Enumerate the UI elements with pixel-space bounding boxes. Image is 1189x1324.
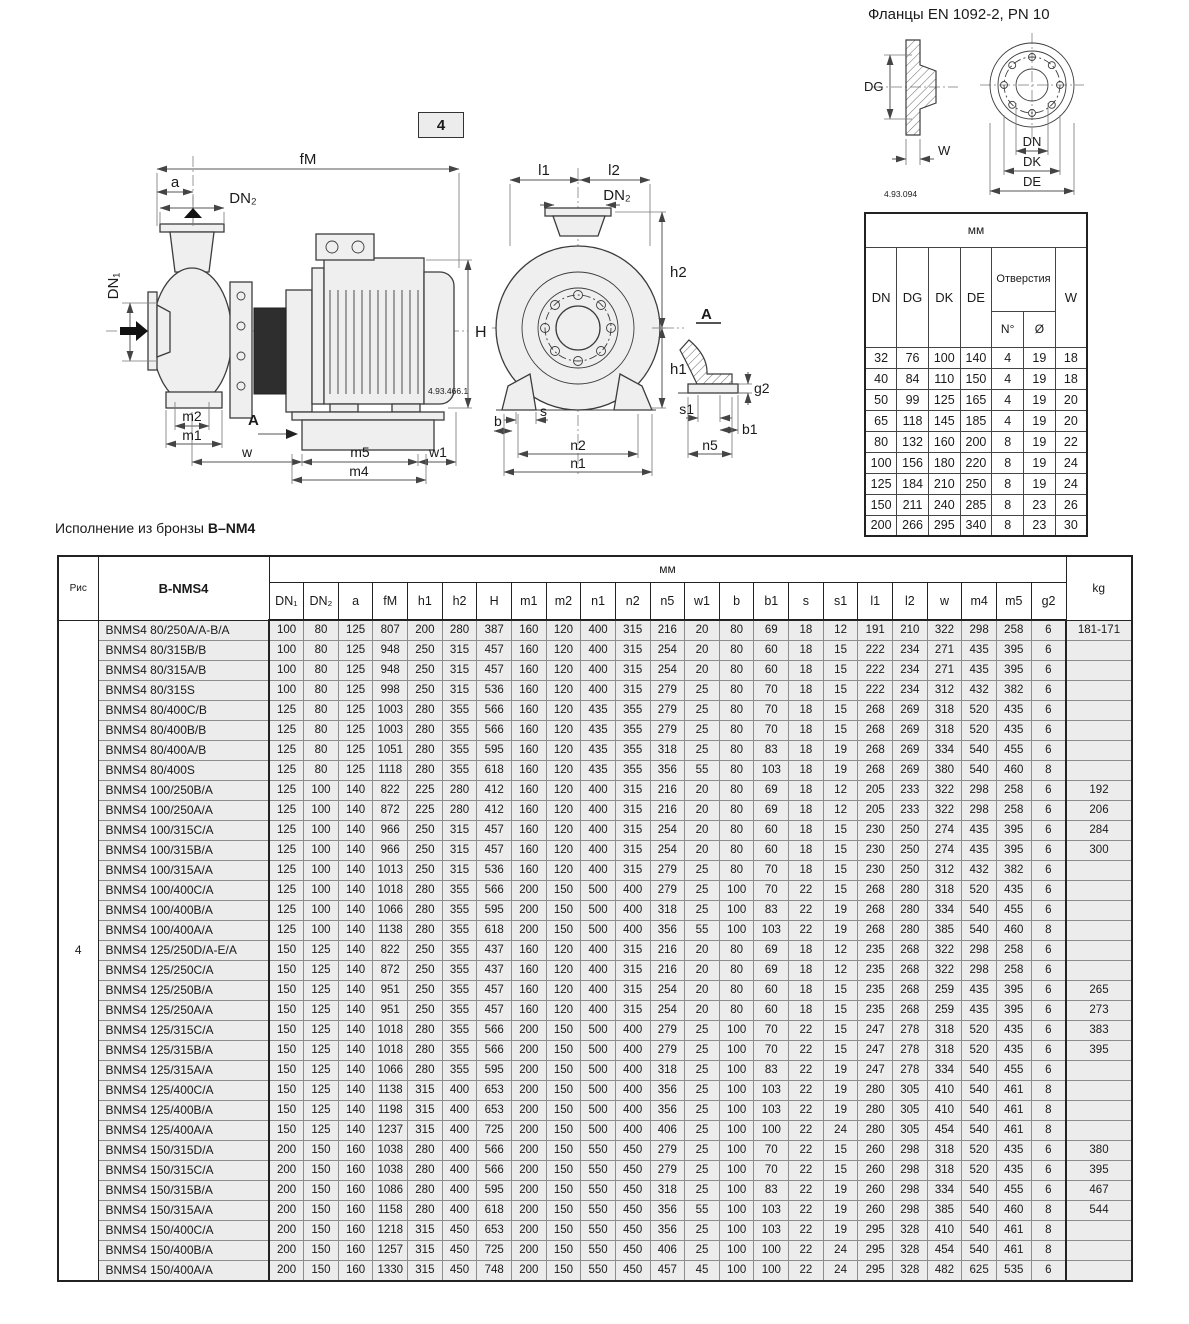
dim-cell: 250 bbox=[408, 661, 443, 681]
dim-cell: 395 bbox=[996, 821, 1031, 841]
dim-cell: 160 bbox=[511, 981, 546, 1001]
dim-cell: 18 bbox=[789, 701, 824, 721]
dim-cell: 406 bbox=[650, 1241, 685, 1261]
dim-cell: 140 bbox=[338, 1041, 373, 1061]
dim-cell: 295 bbox=[858, 1241, 893, 1261]
flange-dim-cell: 8 bbox=[992, 515, 1024, 536]
flange-dim-cell: 285 bbox=[960, 494, 992, 515]
suction-flow-arrow bbox=[120, 321, 148, 341]
dim-cell: 140 bbox=[338, 1061, 373, 1081]
flange-dim-cell: 30 bbox=[1055, 515, 1087, 536]
flange-dim-cell: 165 bbox=[960, 389, 992, 410]
dim-cell: 18 bbox=[789, 941, 824, 961]
dim-cell: 278 bbox=[893, 1041, 928, 1061]
dim-cell: 500 bbox=[581, 921, 616, 941]
flange-dim-cell: 50 bbox=[865, 389, 897, 410]
dim-cell: 120 bbox=[546, 961, 581, 981]
dim-cell: 22 bbox=[789, 1061, 824, 1081]
flange-col-holes-d: Ø bbox=[1024, 311, 1056, 347]
flange-dim-cell: 19 bbox=[1024, 389, 1056, 410]
dim-cell: 450 bbox=[615, 1181, 650, 1201]
dim-cell: 6 bbox=[1031, 661, 1066, 681]
dim-col-header: n1 bbox=[581, 582, 616, 620]
dim-cell: 318 bbox=[927, 1161, 962, 1181]
dim-cell: 22 bbox=[789, 901, 824, 921]
dim-cell: 279 bbox=[650, 1161, 685, 1181]
volute-casing bbox=[496, 208, 660, 410]
dim-cell: 83 bbox=[754, 1181, 789, 1201]
dim-cell: 216 bbox=[650, 941, 685, 961]
dim-cell: 318 bbox=[650, 1181, 685, 1201]
figure-number-box: 4 bbox=[418, 112, 464, 138]
dim-cell: 15 bbox=[823, 701, 858, 721]
model-name-cell: BNMS4 125/400B/A bbox=[98, 1101, 269, 1121]
dim-cell: 500 bbox=[581, 1081, 616, 1101]
dim-cell: 22 bbox=[789, 1261, 824, 1282]
dim-cell: 355 bbox=[442, 1041, 477, 1061]
flange-table-row: 408411015041918 bbox=[865, 368, 1087, 389]
dim-cell: 12 bbox=[823, 781, 858, 801]
dim-cell: 540 bbox=[962, 1241, 997, 1261]
dim-cell: 500 bbox=[581, 1061, 616, 1081]
dim-cell: 150 bbox=[269, 941, 304, 961]
dim-cell: 120 bbox=[546, 841, 581, 861]
dim-cell: 450 bbox=[615, 1161, 650, 1181]
dim-cell: 1330 bbox=[373, 1261, 408, 1282]
dim-cell: 457 bbox=[650, 1261, 685, 1282]
dim-cell: 520 bbox=[962, 1021, 997, 1041]
dim-cell: 315 bbox=[615, 681, 650, 701]
dim-cell: 822 bbox=[373, 941, 408, 961]
dim-cell: 1018 bbox=[373, 1041, 408, 1061]
bronze-version-note: Исполнение из бронзы B–NM4 bbox=[55, 520, 255, 536]
dim-cell: 1198 bbox=[373, 1101, 408, 1121]
dim-cell: 536 bbox=[477, 681, 512, 701]
dim-cell: 461 bbox=[996, 1101, 1031, 1121]
dim-cell: 70 bbox=[754, 1141, 789, 1161]
table-row: BNMS4 100/315A/A125100140101325031553616… bbox=[58, 861, 1132, 881]
model-name-cell: BNMS4 125/400C/A bbox=[98, 1081, 269, 1101]
dim-cell: 80 bbox=[719, 741, 754, 761]
dim-cell: 140 bbox=[338, 801, 373, 821]
dim-cell: 100 bbox=[719, 881, 754, 901]
dim-cell: 60 bbox=[754, 661, 789, 681]
dim-cell: 356 bbox=[650, 1221, 685, 1241]
section-a-label: A bbox=[248, 412, 259, 429]
dim-cell: 280 bbox=[442, 781, 477, 801]
dim-cell: 822 bbox=[373, 781, 408, 801]
dim-cell: 234 bbox=[893, 681, 928, 701]
dim-label-s1: s1 bbox=[679, 401, 694, 417]
dim-cell: 315 bbox=[615, 941, 650, 961]
dim-cell: 80 bbox=[719, 1001, 754, 1021]
dim-cell: 435 bbox=[962, 981, 997, 1001]
dim-cell: 298 bbox=[962, 620, 997, 641]
kg-cell: 467 bbox=[1066, 1181, 1132, 1201]
dim-cell: 140 bbox=[338, 1121, 373, 1141]
dim-label-n1: n1 bbox=[570, 455, 586, 471]
dim-cell: 25 bbox=[685, 1141, 720, 1161]
dim-label-l1: l1 bbox=[538, 162, 550, 179]
dim-cell: 6 bbox=[1031, 681, 1066, 701]
dim-col-header: m4 bbox=[962, 582, 997, 620]
model-name-cell: BNMS4 125/250D/A-E/A bbox=[98, 941, 269, 961]
dim-cell: 268 bbox=[893, 961, 928, 981]
dim-cell: 540 bbox=[962, 1181, 997, 1201]
dim-cell: 1086 bbox=[373, 1181, 408, 1201]
dim-cell: 450 bbox=[615, 1221, 650, 1241]
dim-cell: 260 bbox=[858, 1161, 893, 1181]
dim-cell: 80 bbox=[304, 761, 339, 781]
dim-cell: 222 bbox=[858, 681, 893, 701]
dim-cell: 70 bbox=[754, 1161, 789, 1181]
dim-cell: 268 bbox=[858, 901, 893, 921]
flange-dimension-table: мм DN DG DK DE Отверстия W N° Ø 32761001… bbox=[864, 212, 1088, 537]
dim-cell: 125 bbox=[269, 841, 304, 861]
dim-cell: 25 bbox=[685, 901, 720, 921]
dim-cell: 125 bbox=[338, 620, 373, 641]
dim-cell: 258 bbox=[996, 781, 1031, 801]
dim-cell: 18 bbox=[789, 841, 824, 861]
dim-cell: 19 bbox=[823, 1201, 858, 1221]
dim-cell: 315 bbox=[408, 1121, 443, 1141]
flange-dim-cell: 40 bbox=[865, 368, 897, 389]
flange-dim-cell: 19 bbox=[1024, 347, 1056, 368]
dim-cell: 356 bbox=[650, 921, 685, 941]
dim-cell: 100 bbox=[719, 1121, 754, 1141]
dim-cell: 315 bbox=[615, 661, 650, 681]
kg-cell: 380 bbox=[1066, 1141, 1132, 1161]
dim-cell: 25 bbox=[685, 1241, 720, 1261]
dim-cell: 380 bbox=[927, 761, 962, 781]
dim-cell: 318 bbox=[927, 1041, 962, 1061]
flange-dim-cell: 184 bbox=[897, 473, 929, 494]
dim-cell: 550 bbox=[581, 1161, 616, 1181]
flange-col-holes-n: N° bbox=[992, 311, 1024, 347]
dim-cell: 225 bbox=[408, 781, 443, 801]
dim-cell: 20 bbox=[685, 620, 720, 641]
dim-cell: 400 bbox=[615, 1121, 650, 1141]
dim-cell: 125 bbox=[338, 761, 373, 781]
bronze-note-text: Исполнение из бронзы bbox=[55, 520, 208, 536]
dim-cell: 103 bbox=[754, 761, 789, 781]
dim-col-header: g2 bbox=[1031, 582, 1066, 620]
dim-cell: 315 bbox=[408, 1101, 443, 1121]
dim-cell: 100 bbox=[719, 1101, 754, 1121]
dim-cell: 268 bbox=[858, 741, 893, 761]
flange-dim-cell: 118 bbox=[897, 410, 929, 431]
dim-cell: 200 bbox=[511, 1021, 546, 1041]
flange-dim-cell: 4 bbox=[992, 410, 1024, 431]
dim-cell: 140 bbox=[338, 921, 373, 941]
table-row: BNMS4 80/315A/B1008012594825031545716012… bbox=[58, 661, 1132, 681]
dim-cell: 318 bbox=[927, 701, 962, 721]
dim-col-header: DN₂ bbox=[304, 582, 339, 620]
dim-cell: 235 bbox=[858, 941, 893, 961]
dim-cell: 125 bbox=[338, 741, 373, 761]
dim-cell: 160 bbox=[511, 701, 546, 721]
dim-cell: 150 bbox=[546, 1181, 581, 1201]
dim-cell: 15 bbox=[823, 681, 858, 701]
dim-cell: 20 bbox=[685, 1001, 720, 1021]
dim-cell: 6 bbox=[1031, 1141, 1066, 1161]
dim-cell: 520 bbox=[962, 1041, 997, 1061]
dim-cell: 298 bbox=[893, 1201, 928, 1221]
dim-cell: 318 bbox=[650, 1061, 685, 1081]
dim-col-header: n5 bbox=[650, 582, 685, 620]
dim-cell: 120 bbox=[546, 681, 581, 701]
dim-cell: 6 bbox=[1031, 981, 1066, 1001]
dim-cell: 457 bbox=[477, 661, 512, 681]
flange-table-row: 8013216020081922 bbox=[865, 431, 1087, 452]
dim-cell: 435 bbox=[996, 721, 1031, 741]
model-name-cell: BNMS4 100/250B/A bbox=[98, 781, 269, 801]
dim-cell: 566 bbox=[477, 1141, 512, 1161]
dim-cell: 25 bbox=[685, 1221, 720, 1241]
dim-cell: 455 bbox=[996, 1181, 1031, 1201]
flange-dim-cell: 65 bbox=[865, 410, 897, 431]
dim-cell: 160 bbox=[511, 781, 546, 801]
dim-cell: 103 bbox=[754, 1201, 789, 1221]
dim-cell: 150 bbox=[269, 1061, 304, 1081]
dim-cell: 140 bbox=[338, 1081, 373, 1101]
flange-table-body: 3276100140419184084110150419185099125165… bbox=[865, 347, 1087, 536]
dim-cell: 400 bbox=[442, 1161, 477, 1181]
fig-number-cell: 4 bbox=[58, 620, 98, 1281]
dim-cell: 25 bbox=[685, 1161, 720, 1181]
dim-label-s: s bbox=[540, 403, 547, 419]
dim-cell: 966 bbox=[373, 821, 408, 841]
dim-cell: 315 bbox=[442, 681, 477, 701]
dim-cell: 298 bbox=[893, 1181, 928, 1201]
flange-dim-cell: 100 bbox=[865, 452, 897, 473]
dim-cell: 140 bbox=[338, 1101, 373, 1121]
dim-cell: 540 bbox=[962, 921, 997, 941]
dim-cell: 20 bbox=[685, 801, 720, 821]
dim-cell: 280 bbox=[408, 701, 443, 721]
dim-cell: 250 bbox=[893, 861, 928, 881]
dim-cell: 315 bbox=[615, 841, 650, 861]
dim-cell: 25 bbox=[685, 1181, 720, 1201]
dim-cell: 100 bbox=[269, 661, 304, 681]
dim-cell: 15 bbox=[823, 1141, 858, 1161]
dim-cell: 20 bbox=[685, 661, 720, 681]
dim-cell: 807 bbox=[373, 620, 408, 641]
flange-col-de: DE bbox=[960, 247, 992, 347]
dim-cell: 8 bbox=[1031, 1241, 1066, 1261]
dim-cell: 6 bbox=[1031, 620, 1066, 641]
table-row: BNMS4 100/250B/A125100140822225280412160… bbox=[58, 781, 1132, 801]
dim-cell: 150 bbox=[269, 1041, 304, 1061]
dim-cell: 322 bbox=[927, 801, 962, 821]
flange-dim-cell: 240 bbox=[928, 494, 960, 515]
dim-cell: 25 bbox=[685, 701, 720, 721]
dim-cell: 400 bbox=[615, 921, 650, 941]
pump-dimension-table: Рис B-NMS4 мм kg DN₁DN₂afMh1h2Hm1m2n1n2n… bbox=[57, 555, 1133, 1282]
dim-cell: 435 bbox=[996, 1021, 1031, 1041]
dim-cell: 205 bbox=[858, 801, 893, 821]
dim-cell: 566 bbox=[477, 1021, 512, 1041]
dim-cell: 125 bbox=[338, 701, 373, 721]
dim-label-h: H bbox=[475, 324, 487, 341]
dim-cell: 725 bbox=[477, 1121, 512, 1141]
dim-cell: 15 bbox=[823, 641, 858, 661]
dim-cell: 100 bbox=[754, 1261, 789, 1282]
dim-cell: 260 bbox=[858, 1201, 893, 1221]
dim-cell: 725 bbox=[477, 1241, 512, 1261]
dim-cell: 140 bbox=[338, 861, 373, 881]
dim-cell: 120 bbox=[546, 741, 581, 761]
dim-cell: 18 bbox=[789, 620, 824, 641]
flange-table-row: 20026629534082330 bbox=[865, 515, 1087, 536]
dim-cell: 540 bbox=[962, 901, 997, 921]
dim-cell: 80 bbox=[719, 681, 754, 701]
dim-cell: 15 bbox=[823, 861, 858, 881]
dim-cell: 540 bbox=[962, 1101, 997, 1121]
dim-cell: 120 bbox=[546, 801, 581, 821]
model-name-cell: BNMS4 150/315C/A bbox=[98, 1161, 269, 1181]
dim-cell: 435 bbox=[962, 821, 997, 841]
dim-cell: 550 bbox=[581, 1221, 616, 1241]
kg-cell bbox=[1066, 701, 1132, 721]
dim-label-b: b bbox=[494, 413, 502, 429]
dim-cell: 69 bbox=[754, 961, 789, 981]
dim-cell: 315 bbox=[408, 1081, 443, 1101]
dim-cell: 20 bbox=[685, 981, 720, 1001]
table-row: 4BNMS4 80/250A/A-B/A10080125807200280387… bbox=[58, 620, 1132, 641]
flange-table-row: 12518421025081924 bbox=[865, 473, 1087, 494]
dim-cell: 455 bbox=[996, 1061, 1031, 1081]
kg-cell bbox=[1066, 1101, 1132, 1121]
dim-cell: 258 bbox=[996, 801, 1031, 821]
dim-cell: 60 bbox=[754, 1001, 789, 1021]
dim-cell: 268 bbox=[858, 921, 893, 941]
dim-cell: 200 bbox=[269, 1261, 304, 1282]
dim-cell: 400 bbox=[581, 941, 616, 961]
dim-cell: 356 bbox=[650, 1201, 685, 1221]
kg-cell bbox=[1066, 1221, 1132, 1241]
dim-cell: 150 bbox=[546, 1121, 581, 1141]
dim-cell: 432 bbox=[962, 681, 997, 701]
dim-cell: 280 bbox=[408, 881, 443, 901]
model-name-cell: BNMS4 80/250A/A-B/A bbox=[98, 620, 269, 641]
dim-cell: 280 bbox=[893, 881, 928, 901]
dim-cell: 550 bbox=[581, 1181, 616, 1201]
dim-cell: 315 bbox=[615, 861, 650, 881]
dim-cell: 268 bbox=[893, 981, 928, 1001]
dim-cell: 25 bbox=[685, 1061, 720, 1081]
dim-cell: 19 bbox=[823, 761, 858, 781]
dim-cell: 83 bbox=[754, 1061, 789, 1081]
dim-cell: 25 bbox=[685, 1081, 720, 1101]
flange-section-view bbox=[906, 40, 936, 135]
model-name-cell: BNMS4 125/400A/A bbox=[98, 1121, 269, 1141]
dim-cell: 280 bbox=[442, 620, 477, 641]
dim-cell: 268 bbox=[893, 1001, 928, 1021]
dim-cell: 435 bbox=[962, 841, 997, 861]
dim-label-dn: DN bbox=[1023, 134, 1042, 149]
dim-col-header: h1 bbox=[408, 582, 443, 620]
kg-cell: 395 bbox=[1066, 1161, 1132, 1181]
dim-cell: 150 bbox=[269, 961, 304, 981]
dim-cell: 355 bbox=[442, 721, 477, 741]
flange-table-row: 509912516541920 bbox=[865, 389, 1087, 410]
table-row: BNMS4 150/315B/A200150160108628040059520… bbox=[58, 1181, 1132, 1201]
dim-cell: 100 bbox=[304, 881, 339, 901]
dim-cell: 80 bbox=[304, 701, 339, 721]
dim-cell: 461 bbox=[996, 1241, 1031, 1261]
dim-cell: 150 bbox=[304, 1161, 339, 1181]
dim-cell: 280 bbox=[408, 921, 443, 941]
dim-cell: 6 bbox=[1031, 941, 1066, 961]
dim-cell: 1066 bbox=[373, 901, 408, 921]
dim-cell: 70 bbox=[754, 861, 789, 881]
dim-cell: 454 bbox=[927, 1241, 962, 1261]
dim-cell: 70 bbox=[754, 701, 789, 721]
flange-dim-cell: 19 bbox=[1024, 368, 1056, 389]
dim-cell: 19 bbox=[823, 1061, 858, 1081]
bronze-model: B–NM4 bbox=[208, 520, 255, 536]
dim-cell: 6 bbox=[1031, 901, 1066, 921]
dim-cell: 160 bbox=[338, 1181, 373, 1201]
table-row: BNMS4 125/250C/A150125140872250355437160… bbox=[58, 961, 1132, 981]
kg-cell bbox=[1066, 941, 1132, 961]
dim-cell: 103 bbox=[754, 1101, 789, 1121]
dim-cell: 280 bbox=[858, 1081, 893, 1101]
dim-cell: 200 bbox=[511, 1081, 546, 1101]
dim-cell: 8 bbox=[1031, 761, 1066, 781]
section-a-arrow bbox=[286, 429, 298, 439]
dim-cell: 15 bbox=[823, 981, 858, 1001]
dim-cell: 315 bbox=[408, 1241, 443, 1261]
flange-dim-cell: 19 bbox=[1024, 473, 1056, 494]
dim-cell: 70 bbox=[754, 1021, 789, 1041]
dim-cell: 120 bbox=[546, 781, 581, 801]
dim-cell: 80 bbox=[719, 641, 754, 661]
dim-cell: 80 bbox=[719, 981, 754, 1001]
dim-cell: 150 bbox=[546, 921, 581, 941]
dim-cell: 259 bbox=[927, 981, 962, 1001]
dim-cell: 1218 bbox=[373, 1221, 408, 1241]
dim-cell: 400 bbox=[581, 661, 616, 681]
dim-cell: 280 bbox=[442, 801, 477, 821]
dim-cell: 268 bbox=[858, 761, 893, 781]
dim-cell: 150 bbox=[304, 1241, 339, 1261]
dim-cell: 400 bbox=[442, 1141, 477, 1161]
dim-cell: 25 bbox=[685, 741, 720, 761]
dim-cell: 315 bbox=[408, 1221, 443, 1241]
kg-cell bbox=[1066, 861, 1132, 881]
dim-cell: 100 bbox=[754, 1241, 789, 1261]
dim-cell: 1066 bbox=[373, 1061, 408, 1081]
dim-cell: 140 bbox=[338, 841, 373, 861]
dim-cell: 328 bbox=[893, 1221, 928, 1241]
dim-cell: 200 bbox=[511, 1241, 546, 1261]
dim-cell: 150 bbox=[269, 1021, 304, 1041]
table-row: BNMS4 125/400A/A150125140123731540072520… bbox=[58, 1121, 1132, 1141]
model-name-cell: BNMS4 80/400B/B bbox=[98, 721, 269, 741]
dim-cell: 150 bbox=[546, 1241, 581, 1261]
dim-cell: 400 bbox=[442, 1181, 477, 1201]
dim-cell: 356 bbox=[650, 761, 685, 781]
table-row: BNMS4 80/315B/B1008012594825031545716012… bbox=[58, 641, 1132, 661]
dim-cell: 8 bbox=[1031, 1081, 1066, 1101]
model-name-cell: BNMS4 150/315A/A bbox=[98, 1201, 269, 1221]
model-name-cell: BNMS4 125/315C/A bbox=[98, 1021, 269, 1041]
table-row: BNMS4 80/315S100801259982503155361601204… bbox=[58, 681, 1132, 701]
dim-cell: 268 bbox=[858, 721, 893, 741]
dim-cell: 400 bbox=[442, 1201, 477, 1221]
